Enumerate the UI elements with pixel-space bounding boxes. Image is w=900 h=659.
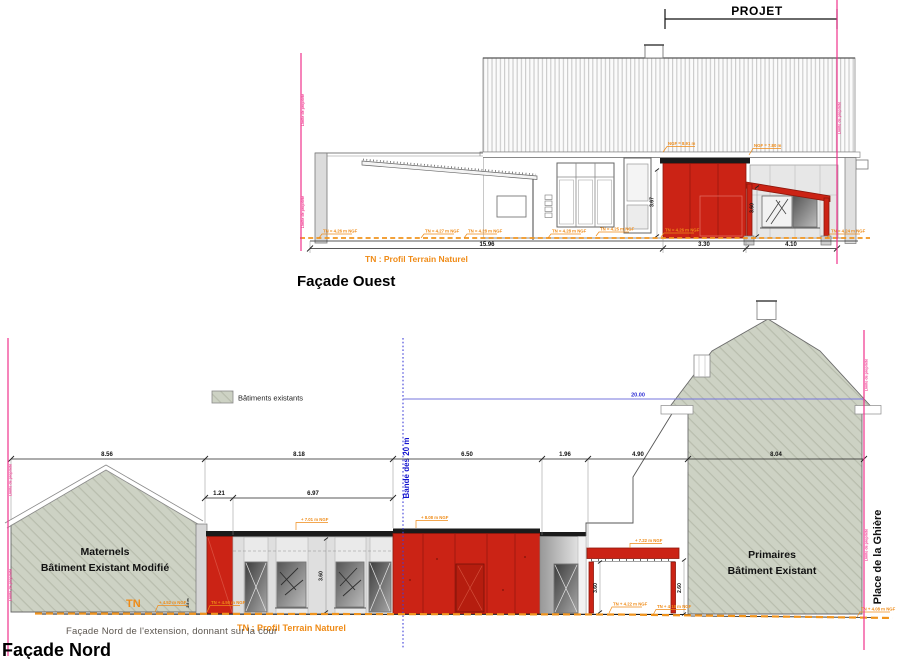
porch-window [760, 196, 820, 228]
facade-nord-caption: Façade Nord de l'extension, donnant sur … [66, 626, 277, 637]
nord-dim-row-2: 1.21 6.97 [202, 491, 396, 535]
dim-856: 8.56 [101, 452, 113, 458]
ngf-mid-label: + 7.01 m NGF [301, 517, 329, 522]
dim-h-porch: 3.60 [750, 203, 756, 213]
legend-existing-buildings: Bâtiments existants [212, 391, 303, 403]
maternels-label-2: Bâtiment Existant Modifié [41, 562, 170, 574]
projet-label: PROJET [731, 4, 783, 18]
chimney-small [694, 355, 710, 377]
dim-196: 1.96 [559, 452, 571, 458]
porch-post-right [824, 198, 829, 236]
ngf-canopy-label: + 7.22 m NGF [635, 538, 663, 543]
tn-label: TN = 4.27 m NGF [425, 229, 460, 234]
dim-h-passage: 2.60 [677, 583, 683, 593]
facade-nord-title: Façade Nord [2, 640, 111, 659]
window-1 [275, 562, 308, 608]
tn-label: TN = 4.28 m NGF [552, 229, 587, 234]
chimney-main [757, 301, 776, 320]
tn-label: TN = 4.28 m NGF [468, 229, 503, 234]
large-window [557, 163, 614, 227]
gutter-box [856, 160, 868, 169]
maternels-label-1: Maternels [80, 546, 129, 558]
limite-label: Limite de propriété [301, 94, 305, 126]
legend-label: Bâtiments existants [238, 394, 303, 403]
tn-label: TN + 4.08 m NGF [861, 607, 896, 612]
band-height-label: 20.00 [631, 393, 645, 399]
tn-label: TN + 4.50 m NGF [211, 600, 246, 605]
tn-label: TN + 4.18 m NGF [657, 604, 692, 609]
dim-red-bay: 3.30 [698, 242, 710, 248]
dim-650: 6.50 [461, 452, 473, 458]
dim-h-small: 2.8 m [186, 598, 190, 607]
tn-label: TN = 4.24 m NGF [831, 229, 866, 234]
dim-h-mid: 3.60 [319, 571, 325, 581]
limite-label: Limite de propriété [301, 196, 305, 228]
dim-h-canopy: 3.60 [593, 583, 599, 593]
legend-swatch [212, 391, 233, 403]
dim-total: 15.96 [479, 242, 495, 248]
nord-extension: 3.60 + 7.01 m NGF + 8.08 m NGF [196, 373, 697, 616]
pillar [196, 524, 207, 614]
tn-label: TN + 4.22 m NGF [613, 602, 648, 607]
chimney [645, 45, 663, 58]
tn-label: TN = 4.26 m NGF [323, 229, 358, 234]
limite-label: Limite de propriété [865, 529, 869, 561]
door-2 [369, 562, 391, 612]
primaires-label-1: Primaires [748, 549, 796, 561]
elevations-canvas: PROJET [0, 0, 900, 659]
ouest-porch [744, 165, 838, 245]
ouest-ground [300, 238, 870, 241]
limite-label: Limite de propriété [838, 102, 842, 134]
maternels-building: Maternels Bâtiment Existant Modifié [5, 465, 203, 612]
entry-door [624, 158, 651, 233]
facade-ouest-title: Façade Ouest [297, 273, 395, 290]
architectural-drawing-sheet: PROJET [0, 0, 900, 659]
tn-label: TN = 4.26 m NGF [665, 228, 700, 233]
facade-ouest-drawing: PROJET [297, 0, 870, 290]
ngf-red-label: NGF = 8.91 m [668, 141, 696, 146]
ngf-red-label: + 8.08 m NGF [421, 515, 449, 520]
tn-label: + 4.52 m NGF [159, 600, 187, 605]
window-2 [334, 562, 366, 608]
facade-nord-drawing: Bâtiments existants Maternels Bâtiment E… [2, 301, 896, 659]
dim-818: 8.18 [293, 452, 305, 458]
primaires-label-2: Bâtiment Existant [728, 565, 817, 577]
tn-label: TN = 4.25 m NGF [600, 227, 635, 232]
dim-490: 4.90 [632, 452, 644, 458]
bande-20m-label: Bande des 20 m [402, 438, 411, 499]
tn-profile-label-ouest: TN : Profil Terrain Naturel [365, 254, 468, 264]
small-window [497, 196, 526, 217]
projet-bracket: PROJET [665, 4, 837, 29]
red-section-b [393, 529, 540, 615]
door-1 [245, 562, 267, 612]
place-ghiere-label: Place de la Ghière [872, 510, 884, 605]
limite-label: Limite de propriété [9, 464, 13, 496]
ngf-porch-label: NGF = 7.80 m [754, 143, 782, 148]
dim-h-red: 3.67 [650, 197, 656, 207]
tn-abbrev: TN [126, 598, 141, 610]
limite-label: Limite de propriété [865, 359, 869, 391]
dim-697: 6.97 [307, 491, 319, 497]
dim-porch: 4.10 [785, 242, 797, 248]
ouest-roof [480, 45, 868, 176]
ouest-red-bay [660, 158, 750, 238]
limite-label: Limite de propriété [9, 569, 13, 601]
dim-121: 1.21 [213, 491, 225, 497]
dim-804: 8.04 [770, 452, 782, 458]
gray-corner-unit [540, 532, 586, 614]
